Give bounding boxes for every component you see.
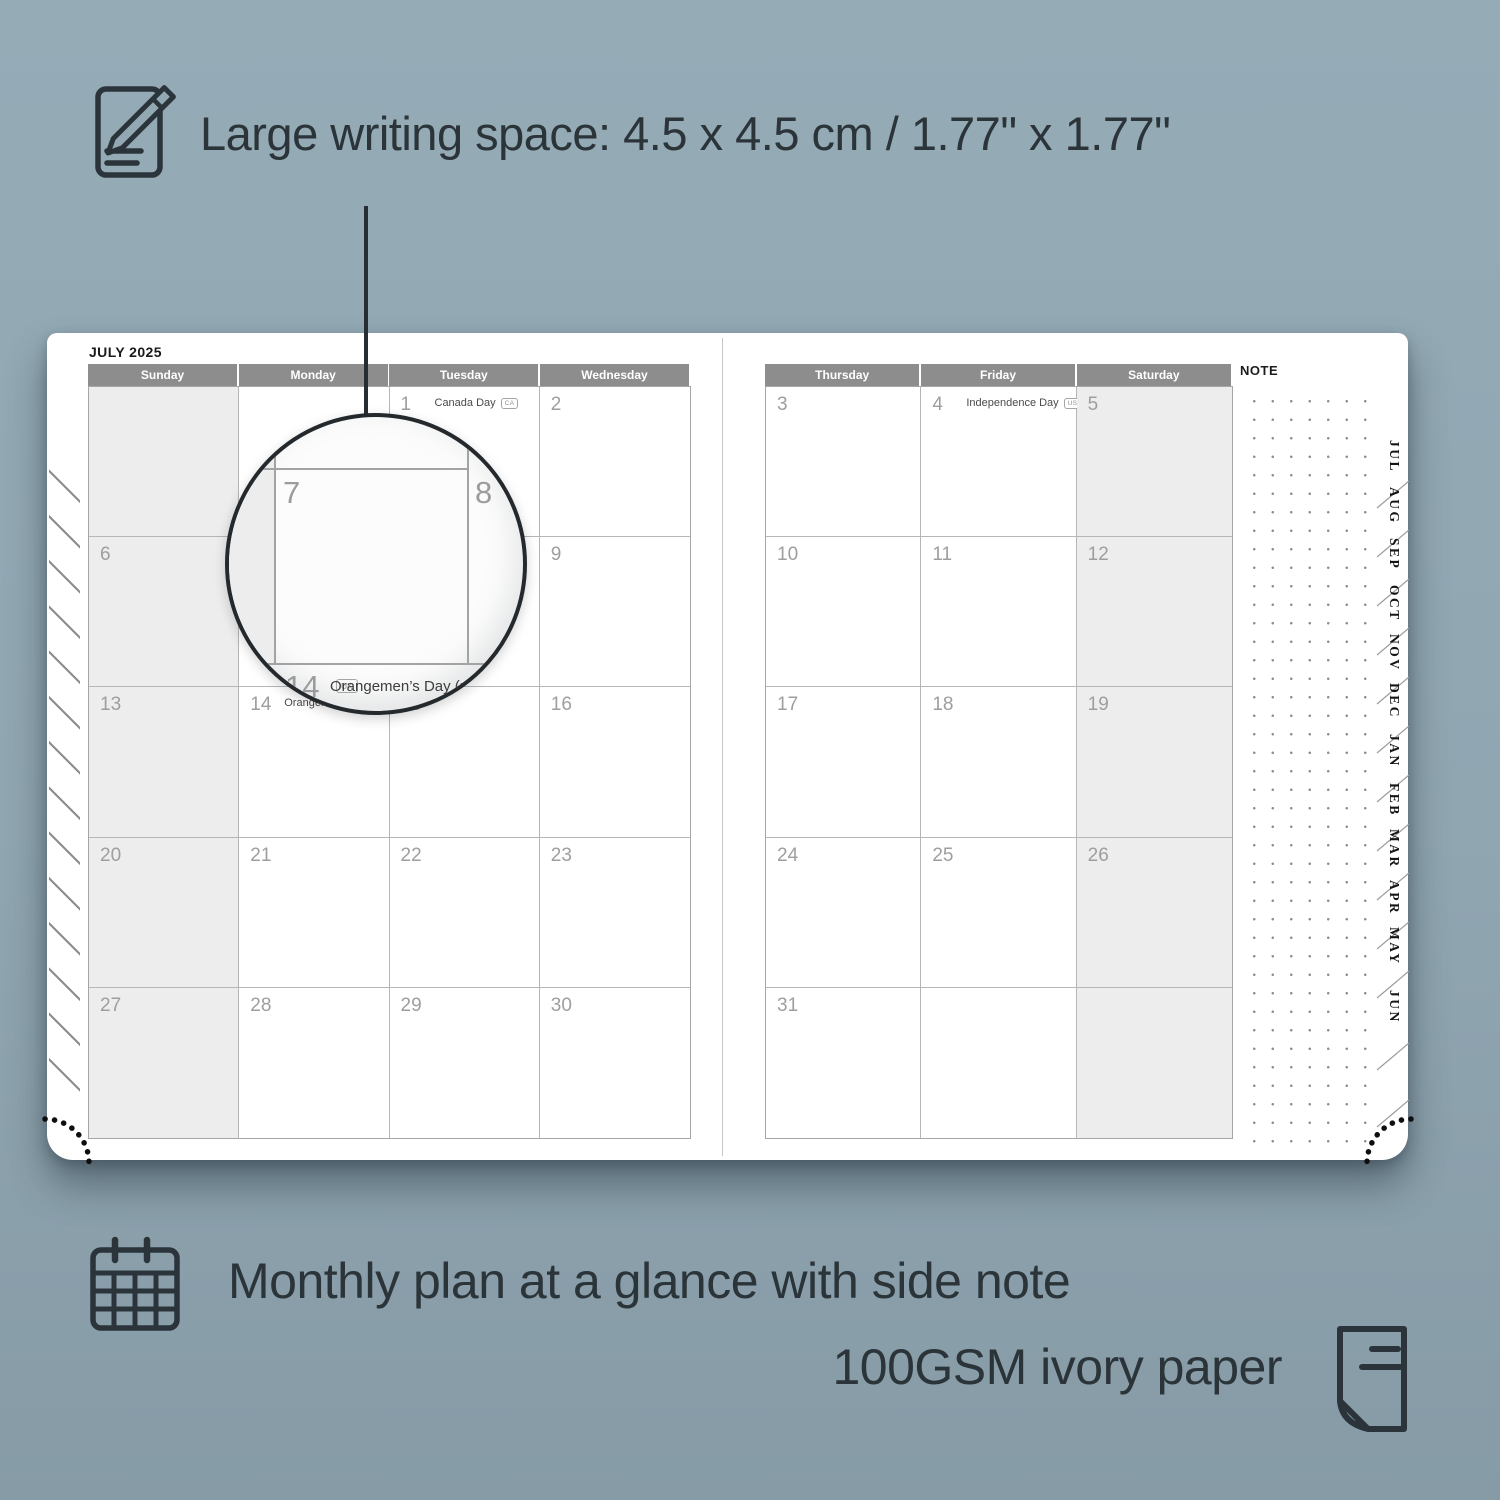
day-number: 16	[551, 694, 572, 716]
day-header: Saturday	[1077, 364, 1231, 386]
calendar-cell: 16	[540, 687, 690, 837]
magnified-day-number: 8	[475, 475, 492, 511]
calendar-cell: 13	[89, 687, 239, 837]
month-tab-feb: FEB	[1381, 775, 1407, 824]
calendar-cell: 27	[89, 988, 239, 1138]
calendar-cell: 22	[390, 838, 540, 988]
day-number: 2	[551, 394, 562, 416]
calendar-cell: 19	[1077, 687, 1232, 837]
calendar-cell	[89, 387, 239, 537]
calendar-cell: 4Independence DayUS	[921, 387, 1076, 537]
day-number: 17	[777, 694, 798, 716]
calendar-cell: 28	[239, 988, 389, 1138]
feature-monthly-plan-label: Monthly plan at a glance with side note	[228, 1252, 1070, 1310]
day-number: 27	[100, 995, 121, 1017]
calendar-cell: 9	[540, 537, 690, 687]
calendar-cell: 21	[239, 838, 389, 988]
note-label: NOTE	[1240, 363, 1278, 378]
month-tab-oct: OCT	[1381, 579, 1407, 628]
magnifier-pointer-line	[364, 206, 368, 420]
month-tab-may: MAY	[1381, 922, 1407, 971]
holiday-text: Orangemen’s Day (n.i.)	[330, 678, 485, 695]
day-header: Wednesday	[540, 364, 689, 386]
day-number: 14	[250, 694, 271, 716]
day-number: 26	[1088, 845, 1109, 867]
note-dot-grid	[1240, 386, 1376, 1146]
magnified-grid-line	[229, 663, 523, 665]
holiday-label: Independence DayUS	[966, 397, 1081, 409]
calendar-cell: 11	[921, 537, 1076, 687]
page-edge-hatching	[49, 458, 80, 1103]
day-number: 1	[401, 394, 412, 416]
calendar-cell: 20	[89, 838, 239, 988]
calendar-cell: 3	[766, 387, 921, 537]
calendar-cell	[921, 988, 1076, 1138]
calendar-cell: 6	[89, 537, 239, 687]
calendar-cell: 25	[921, 838, 1076, 988]
calendar-cell: 30	[540, 988, 690, 1138]
calendar-cell: 12	[1077, 537, 1232, 687]
calendar-cell	[1077, 988, 1232, 1138]
feature-writing-space-label: Large writing space: 4.5 x 4.5 cm / 1.77…	[200, 106, 1170, 161]
magnified-grid-line	[229, 468, 467, 470]
day-number: 21	[250, 845, 271, 867]
month-tab-sep: SEP	[1381, 530, 1407, 579]
day-number: 23	[551, 845, 572, 867]
day-header: Tuesday	[389, 364, 538, 386]
calendar-cell: 5	[1077, 387, 1232, 537]
day-number: 18	[932, 694, 953, 716]
right-page-grid: 34Independence DayUS51011121718192425263…	[765, 386, 1233, 1139]
day-number: 22	[401, 845, 422, 867]
day-number: 11	[932, 544, 952, 566]
calendar-cell: 2	[540, 387, 690, 537]
magnified-holiday-label: Orangemen’s Day (n.i.)UK	[330, 678, 358, 695]
paper-page-icon	[1320, 1320, 1412, 1438]
day-number: 10	[777, 544, 798, 566]
magnified-day-number: 7	[283, 475, 300, 511]
notepad-pencil-icon	[90, 72, 190, 184]
month-tab-dec: DEC	[1381, 677, 1407, 726]
month-tab-jan: JAN	[1381, 726, 1407, 775]
calendar-cell: 29	[390, 988, 540, 1138]
holiday-label: Canada DayCA	[435, 397, 519, 409]
day-number: 29	[401, 995, 422, 1017]
day-number: 5	[1088, 394, 1099, 416]
planner-product-image: Large writing space: 4.5 x 4.5 cm / 1.77…	[0, 0, 1500, 1500]
calendar-cell: 24	[766, 838, 921, 988]
month-tab-nov: NOV	[1381, 628, 1407, 677]
day-number: 13	[100, 694, 121, 716]
day-number: 3	[777, 394, 788, 416]
calendar-cell: 18	[921, 687, 1076, 837]
magnifier-circle: 7 8 14 Orangemen’s Day (n.i.)UK	[225, 413, 527, 715]
month-title: JULY 2025	[89, 344, 162, 360]
magnified-day-number: 14	[285, 669, 319, 705]
day-number: 25	[932, 845, 953, 867]
magnified-grid-line	[274, 417, 276, 663]
day-number: 20	[100, 845, 121, 867]
day-header: Thursday	[765, 364, 919, 386]
day-number: 9	[551, 544, 562, 566]
calendar-cell: 10	[766, 537, 921, 687]
day-number: 4	[932, 394, 943, 416]
day-number: 28	[250, 995, 271, 1017]
left-page-day-headers: SundayMondayTuesdayWednesday	[88, 364, 689, 386]
magnified-weekend-shading	[229, 417, 274, 663]
calendar-cell: 23	[540, 838, 690, 988]
month-tab-aug: AUG	[1381, 481, 1407, 530]
month-tab-apr: APR	[1381, 873, 1407, 922]
day-header: Friday	[921, 364, 1075, 386]
page-spine	[722, 338, 723, 1156]
day-number: 12	[1088, 544, 1109, 566]
day-number: 6	[100, 544, 111, 566]
calendar-cell: 17	[766, 687, 921, 837]
day-number: 31	[777, 995, 798, 1017]
country-badge: CA	[501, 398, 519, 409]
right-page-day-headers: ThursdayFridaySaturday	[765, 364, 1231, 386]
month-tab-jun: JUN	[1381, 971, 1407, 1043]
calendar-cell: 31	[766, 988, 921, 1138]
magnified-grid-line	[467, 417, 469, 663]
day-number: 24	[777, 845, 798, 867]
month-tab-mar: MAR	[1381, 824, 1407, 873]
day-number: 19	[1088, 694, 1109, 716]
feature-paper-label: 100GSM ivory paper	[832, 1338, 1282, 1396]
calendar-cell: 26	[1077, 838, 1232, 988]
calendar-grid-icon	[85, 1236, 185, 1336]
day-header: Sunday	[88, 364, 237, 386]
day-number: 30	[551, 995, 572, 1017]
month-tab-jul: JUL	[1381, 432, 1407, 481]
